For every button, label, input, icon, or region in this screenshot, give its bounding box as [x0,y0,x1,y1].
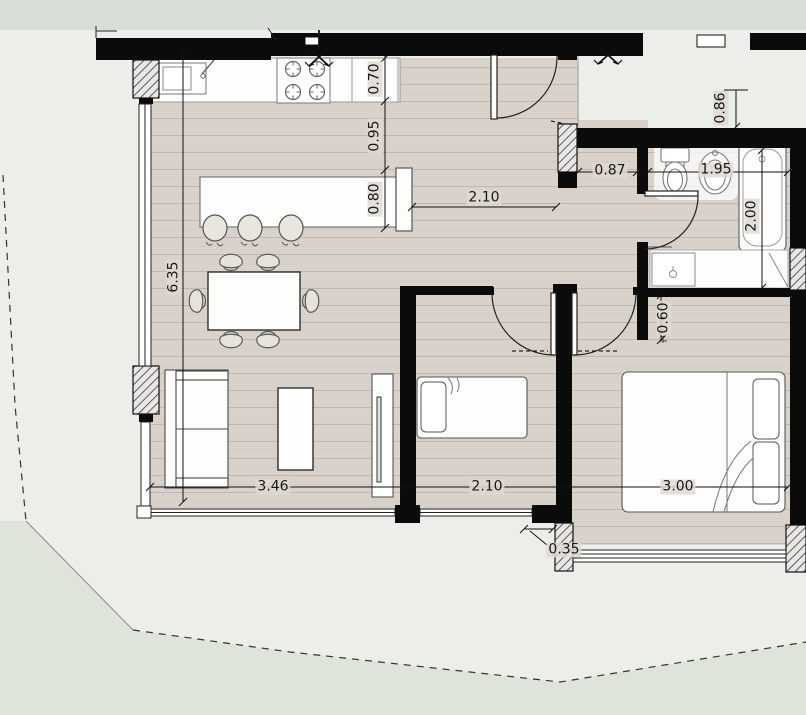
toilet [661,148,689,194]
double-bed [622,372,785,512]
sofa [165,370,228,488]
right-wall-upper [790,146,806,248]
floor-plan-drawing [0,0,806,715]
right-wall-lower [790,290,806,525]
bottom-pier-left [395,505,420,523]
stove-cooktop [277,58,330,103]
kitchen-sink [158,60,214,94]
bedroom-divider-wall [556,294,572,517]
dim-label-island-depth: 0.80 [368,181,383,216]
column [133,60,159,98]
top-wall-far-right [750,33,806,50]
dim-label-hallway-width: 0.87 [592,164,627,179]
dim-label-facade-step: 0.35 [546,543,581,558]
entry-jamb [558,48,577,60]
dim-label-living-zone-length: 6.35 [167,259,182,294]
living-bottom-window [151,509,395,516]
pillow [421,382,446,432]
dim-label-wardrobe-depth: 0.60 [657,300,672,335]
dim-label-counter-depth: 0.70 [368,61,383,96]
single-bed [417,377,527,438]
column [133,366,159,414]
door-jamb-small [488,287,494,295]
pillow [753,379,779,439]
island-end-cabinet [396,168,412,231]
dim-label-living-width: 3.46 [255,480,290,495]
top-wall-notch [697,35,725,47]
floor-plan: 0.70 0.95 0.80 2.10 6.35 3.46 2.10 3.00 … [0,0,806,715]
bathroom-top-wall [560,128,806,148]
main-bedroom-window [573,550,786,562]
corridor-pillar-base [558,172,577,188]
top-wall-right [271,33,643,56]
left-window-sill-top [139,98,153,104]
bottom-pier-right [532,505,572,523]
pillow [753,442,779,504]
tv-unit [372,374,393,497]
dim-label-small-bedroom-width: 2.10 [469,480,504,495]
dining-table [208,272,300,330]
dim-label-kitchen-aisle: 0.95 [368,118,383,153]
coffee-table [278,388,313,470]
small-bedroom-window [420,509,532,516]
laundry-closet [648,247,788,288]
kitchen-counter [150,58,400,103]
dim-label-bathroom-width: 1.95 [698,163,733,178]
tv-screen [377,397,381,482]
column [790,248,806,290]
column [786,525,806,572]
dim-label-entry-recess: 0.86 [714,90,729,125]
terrain-top-band [0,0,806,30]
dim-label-kitchen-width: 2.10 [466,191,501,206]
left-window-sill-bottom [139,414,153,422]
column [558,124,577,172]
laundry-bottom-wall [648,288,790,297]
dim-label-main-bedroom-width: 3.00 [660,480,695,495]
dim-label-bathroom-length: 2.00 [745,198,760,233]
